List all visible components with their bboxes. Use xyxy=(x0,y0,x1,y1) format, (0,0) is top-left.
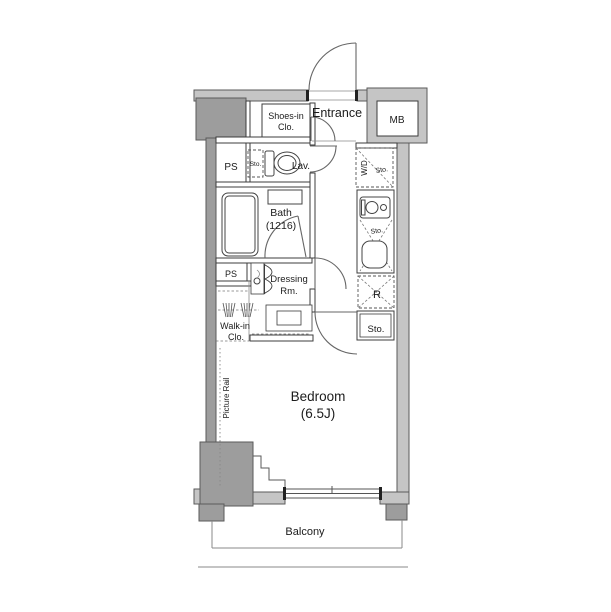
label-lav: Lav. xyxy=(292,161,310,172)
label-dressing-1: Dressing xyxy=(270,274,308,285)
vanity-basin xyxy=(277,311,301,325)
label-shoes-clo-1: Shoes-in xyxy=(268,111,304,121)
label-dressing-2: Rm. xyxy=(280,286,297,297)
entrance-doorframe-right xyxy=(355,90,358,101)
pillar-top-left xyxy=(196,98,246,140)
lavatory-door xyxy=(310,146,337,172)
label-bedroom-2: (6.5J) xyxy=(301,406,336,421)
washer-alcove-fixture xyxy=(254,278,260,284)
label-ps-upper: PS xyxy=(224,162,238,173)
floor-plan-canvas: Shoes-in Clo. Entrance MB PS Sto. Lav. W… xyxy=(0,0,611,612)
pillar-bottom-right-stub xyxy=(386,504,407,520)
pillar-bottom-left-stub xyxy=(199,504,224,521)
label-bath-2: (1216) xyxy=(266,220,296,232)
label-picture-rail: Picture Rail xyxy=(222,377,231,418)
label-mb: MB xyxy=(390,115,405,126)
label-bedroom-1: Bedroom xyxy=(291,389,346,404)
partition-kitchen-top xyxy=(356,143,397,148)
bedroom-door xyxy=(315,312,357,354)
bathtub-inner xyxy=(225,196,255,253)
left-wall xyxy=(206,138,216,446)
partition-under-shoes-clo xyxy=(216,137,312,143)
top-wall-right-stub xyxy=(357,90,367,101)
entrance-doorframe-left xyxy=(306,90,309,101)
bath-counter xyxy=(268,190,302,204)
pillar-bottom-left xyxy=(200,442,253,506)
right-wall xyxy=(397,143,409,497)
bedroom-window xyxy=(283,486,382,500)
label-bath-1: Bath xyxy=(270,207,292,219)
label-entrance: Entrance xyxy=(312,106,362,120)
stove-icon xyxy=(360,197,390,218)
hallway-wall-seg2 xyxy=(310,173,315,258)
label-balcony: Balcony xyxy=(285,526,325,538)
label-sto-wd: Sto. xyxy=(375,166,388,175)
label-ps-lower: PS xyxy=(225,269,237,279)
label-refrigerator: R xyxy=(373,289,381,301)
label-sto-bedroom: Sto. xyxy=(368,324,385,335)
bedroom-step-notch xyxy=(253,442,285,490)
partition-dressing-bottom xyxy=(250,335,313,341)
dressing-room-door xyxy=(315,258,346,289)
label-shoes-clo-2: Clo. xyxy=(278,122,294,132)
partition-above-bath xyxy=(216,182,312,187)
partition-walkin-top xyxy=(216,281,251,286)
label-sto-lav: Sto. xyxy=(250,161,262,168)
label-wd: W/D xyxy=(360,160,369,176)
bottom-wall-right xyxy=(380,492,409,504)
label-walkin-2: Clo. xyxy=(228,332,244,342)
kitchen-sink-icon xyxy=(362,241,387,268)
partition-below-bath xyxy=(216,258,312,263)
floor-plan-drawing: Shoes-in Clo. Entrance MB PS Sto. Lav. W… xyxy=(0,0,611,612)
label-walkin-1: Walk-in xyxy=(220,321,250,331)
entrance-door xyxy=(309,43,356,90)
